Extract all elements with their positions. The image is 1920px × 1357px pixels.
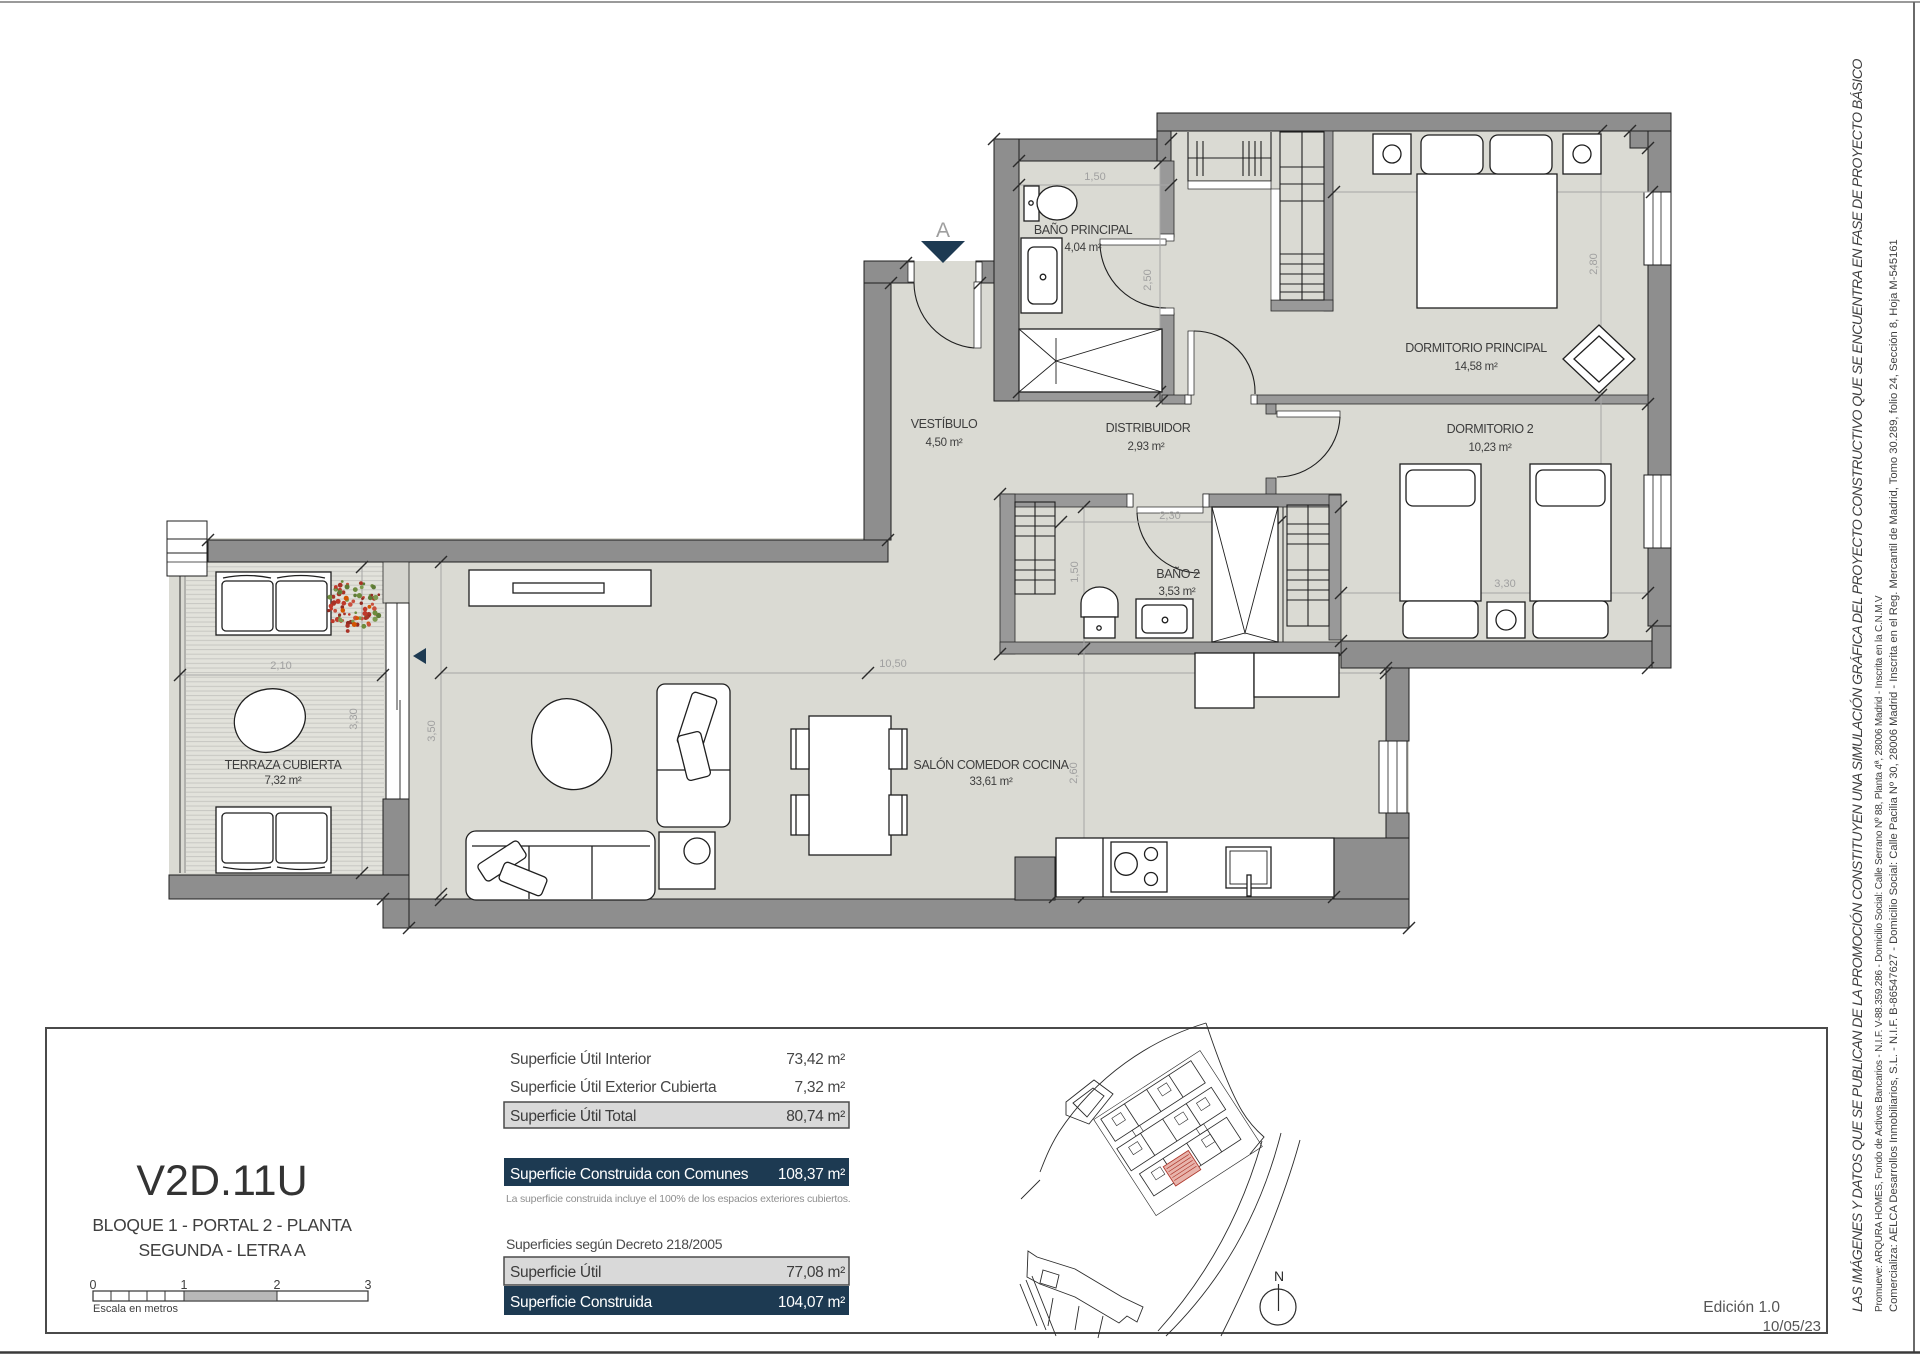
svg-text:TERRAZA CUBIERTA: TERRAZA CUBIERTA	[225, 758, 343, 772]
svg-text:10,50: 10,50	[879, 658, 907, 670]
svg-text:DORMITORIO PRINCIPAL: DORMITORIO PRINCIPAL	[1405, 341, 1547, 355]
svg-text:7,32 m²: 7,32 m²	[265, 775, 302, 787]
svg-text:3,30: 3,30	[348, 708, 360, 729]
svg-text:Superficie Útil Interior: Superficie Útil Interior	[510, 1051, 651, 1068]
svg-text:Promueve: ARQURA HOMES, Fondo: Promueve: ARQURA HOMES, Fondo de Activos…	[1874, 595, 1885, 1312]
svg-text:108,37 m²: 108,37 m²	[778, 1166, 845, 1183]
svg-text:Superficie Útil Total: Superficie Útil Total	[510, 1108, 636, 1125]
svg-text:73,42 m²: 73,42 m²	[786, 1051, 845, 1068]
svg-text:3,30: 3,30	[1494, 578, 1515, 590]
svg-text:3,53 m²: 3,53 m²	[1159, 586, 1196, 598]
svg-text:N: N	[1274, 1268, 1284, 1284]
svg-text:1,50: 1,50	[1069, 561, 1081, 582]
svg-text:2: 2	[274, 1278, 281, 1292]
svg-text:2,50: 2,50	[1142, 269, 1154, 290]
svg-text:V2D.11U: V2D.11U	[136, 1157, 307, 1205]
svg-text:2,60: 2,60	[1068, 762, 1080, 783]
svg-text:2,93 m²: 2,93 m²	[1128, 441, 1165, 453]
svg-text:4,04 m²: 4,04 m²	[1065, 242, 1102, 254]
svg-text:Superficie Útil: Superficie Útil	[510, 1264, 601, 1281]
svg-text:LAS IMÁGENES Y DATOS QUE SE PU: LAS IMÁGENES Y DATOS QUE SE PUBLICAN DE …	[1849, 59, 1866, 1312]
svg-text:33,61 m²: 33,61 m²	[970, 776, 1013, 788]
svg-text:4,50 m²: 4,50 m²	[926, 437, 963, 449]
svg-text:Superficie Útil Exterior Cubie: Superficie Útil Exterior Cubierta	[510, 1079, 717, 1096]
svg-text:77,08 m²: 77,08 m²	[786, 1264, 845, 1281]
svg-text:2,80: 2,80	[1588, 253, 1600, 274]
svg-text:10/05/23: 10/05/23	[1763, 1318, 1821, 1335]
svg-text:La superficie construida inclu: La superficie construida incluye el 100%…	[506, 1193, 851, 1205]
svg-text:SALÓN COMEDOR COCINA: SALÓN COMEDOR COCINA	[913, 757, 1069, 772]
svg-text:VESTÍBULO: VESTÍBULO	[911, 416, 978, 431]
svg-text:7,32 m²: 7,32 m²	[795, 1079, 846, 1096]
svg-text:Superficie Construida: Superficie Construida	[510, 1294, 653, 1311]
svg-text:Edición 1.0: Edición 1.0	[1703, 1299, 1780, 1316]
svg-text:0: 0	[90, 1278, 97, 1292]
svg-text:3,50: 3,50	[426, 720, 438, 741]
svg-text:SEGUNDA - LETRA A: SEGUNDA - LETRA A	[138, 1240, 306, 1260]
svg-text:1,50: 1,50	[1084, 171, 1105, 183]
svg-text:104,07 m²: 104,07 m²	[778, 1294, 845, 1311]
svg-text:DISTRIBUIDOR: DISTRIBUIDOR	[1106, 421, 1191, 435]
svg-text:BAÑO PRINCIPAL: BAÑO PRINCIPAL	[1034, 223, 1133, 237]
svg-text:2,10: 2,10	[270, 660, 291, 672]
svg-text:3: 3	[365, 1278, 372, 1292]
svg-text:Comercializa: AELCA Desarrollo: Comercializa: AELCA Desarrollos Inmobili…	[1888, 239, 1900, 1312]
svg-text:Superficies según Decreto 218/: Superficies según Decreto 218/2005	[506, 1236, 723, 1252]
svg-text:10,23 m²: 10,23 m²	[1469, 442, 1512, 454]
svg-text:2,30: 2,30	[1159, 510, 1180, 522]
svg-text:1: 1	[181, 1278, 188, 1292]
svg-text:BAÑO 2: BAÑO 2	[1156, 567, 1200, 581]
svg-text:A: A	[936, 219, 950, 242]
svg-text:14,58 m²: 14,58 m²	[1455, 361, 1498, 373]
svg-text:DORMITORIO 2: DORMITORIO 2	[1447, 422, 1534, 436]
svg-text:80,74 m²: 80,74 m²	[786, 1108, 845, 1125]
svg-text:Superficie Construida con Comu: Superficie Construida con Comunes	[510, 1166, 749, 1183]
svg-text:BLOQUE 1 - PORTAL 2 - PLANTA: BLOQUE 1 - PORTAL 2 - PLANTA	[92, 1215, 352, 1235]
svg-text:Escala en metros: Escala en metros	[93, 1303, 178, 1315]
